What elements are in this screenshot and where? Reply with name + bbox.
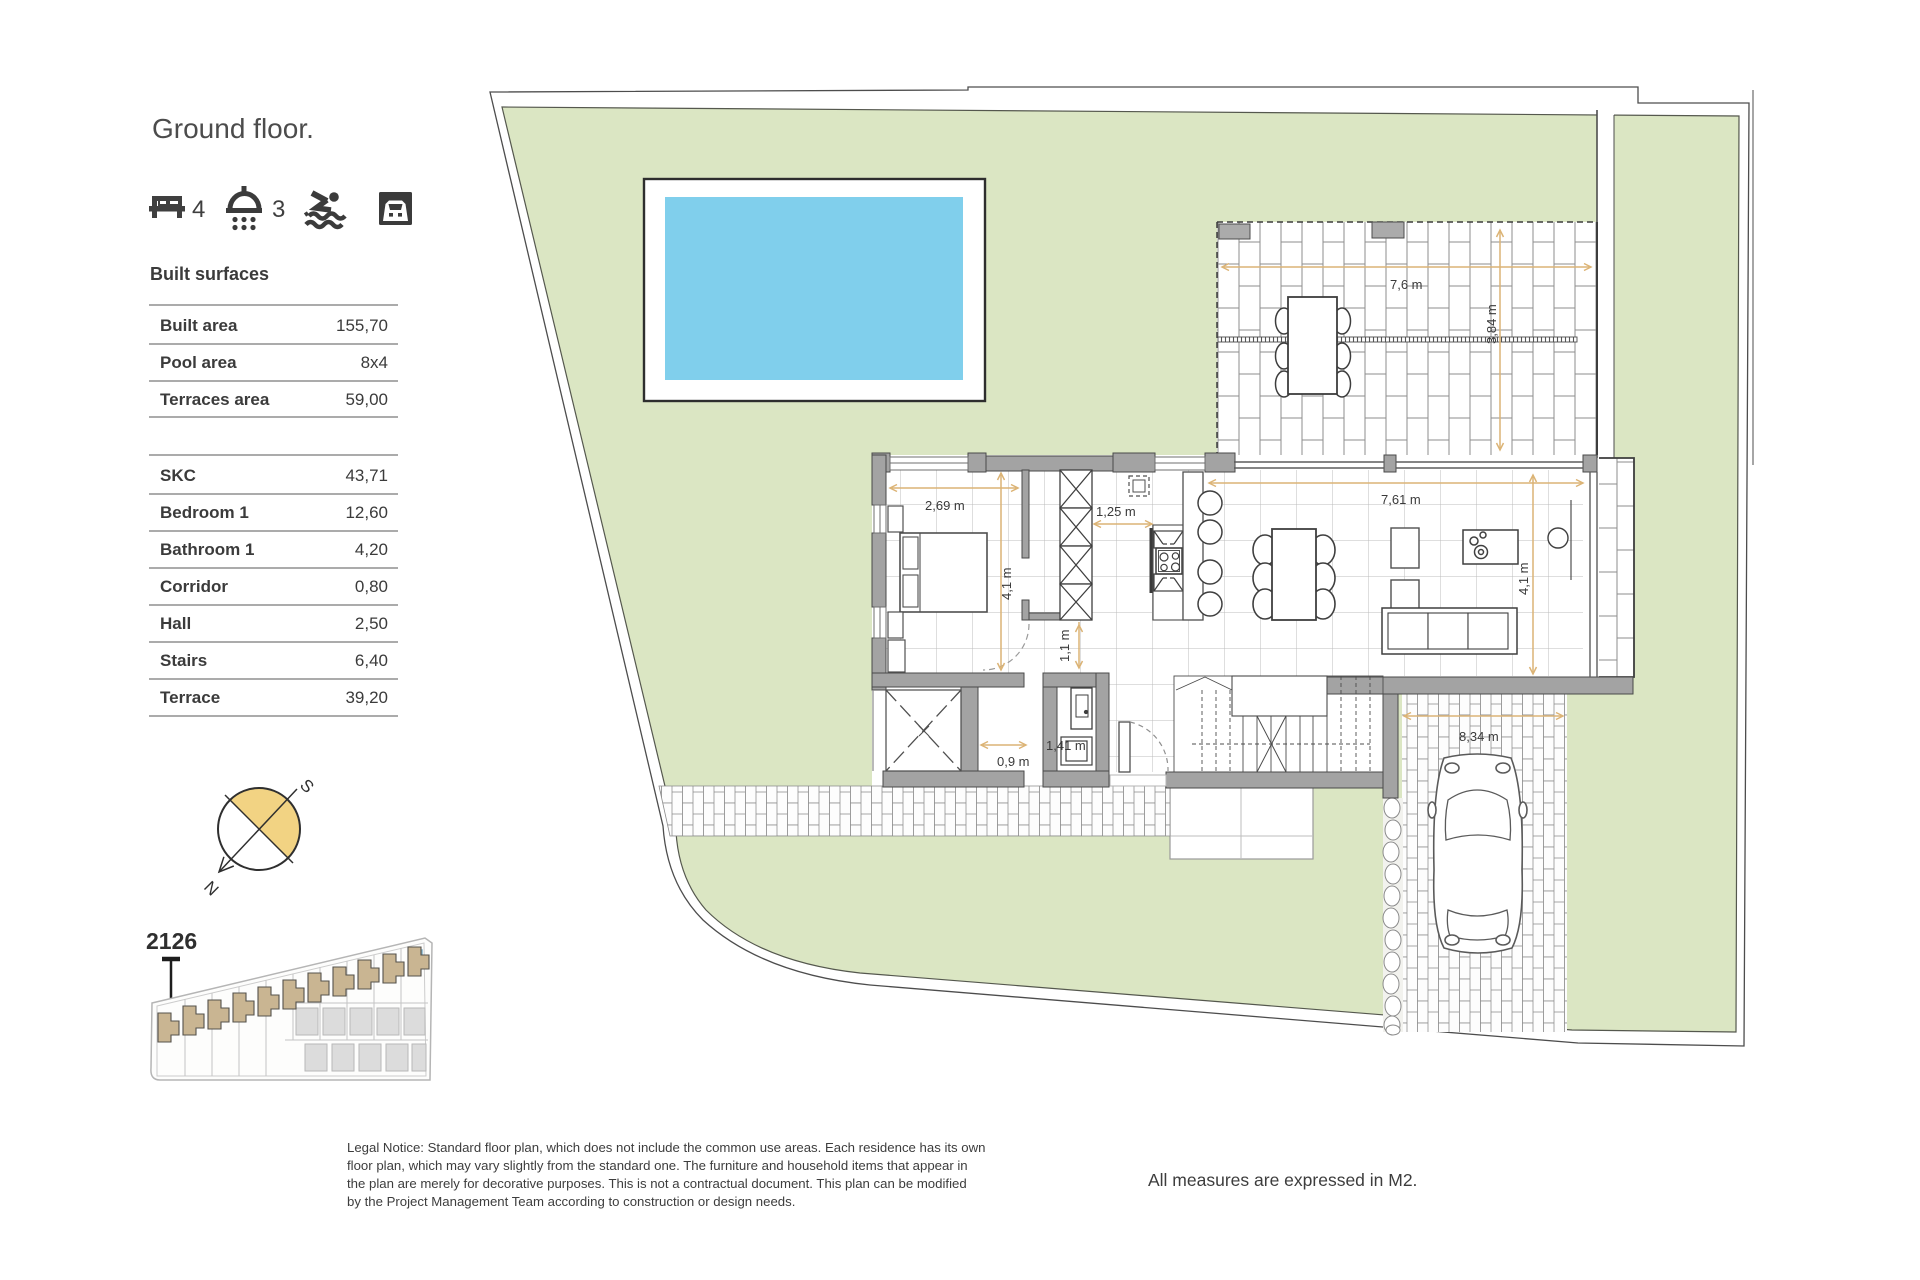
svg-text:by the Project Management Team: by the Project Management Team according… <box>347 1194 795 1209</box>
svg-text:Ground floor.: Ground floor. <box>152 113 314 144</box>
svg-text:Terraces area: Terraces area <box>160 390 270 409</box>
svg-text:4,20: 4,20 <box>355 540 388 559</box>
svg-text:0,9 m: 0,9 m <box>997 754 1030 769</box>
svg-text:Bedroom 1: Bedroom 1 <box>160 503 249 522</box>
svg-text:6,40: 6,40 <box>355 651 388 670</box>
svg-text:43,71: 43,71 <box>345 466 388 485</box>
svg-text:Bathroom 1: Bathroom 1 <box>160 540 254 559</box>
svg-text:Built surfaces: Built surfaces <box>150 264 269 284</box>
svg-text:2,50: 2,50 <box>355 614 388 633</box>
svg-text:8,34 m: 8,34 m <box>1459 729 1499 744</box>
svg-text:2126: 2126 <box>146 928 197 954</box>
svg-text:Built area: Built area <box>160 316 238 335</box>
svg-text:7,61 m: 7,61 m <box>1381 492 1421 507</box>
svg-text:2,69 m: 2,69 m <box>925 498 965 513</box>
svg-text:1,1 m: 1,1 m <box>1057 629 1072 662</box>
svg-text:59,00: 59,00 <box>345 390 388 409</box>
svg-text:3,84 m: 3,84 m <box>1484 304 1499 344</box>
svg-text:Hall: Hall <box>160 614 191 633</box>
svg-text:Stairs: Stairs <box>160 651 207 670</box>
svg-text:Corridor: Corridor <box>160 577 228 596</box>
svg-text:3: 3 <box>272 196 285 223</box>
svg-text:1,25 m: 1,25 m <box>1096 504 1136 519</box>
svg-text:SKC: SKC <box>160 466 196 485</box>
svg-text:All measures are expressed in: All measures are expressed in M2. <box>1148 1170 1417 1190</box>
svg-text:4,1 m: 4,1 m <box>1516 562 1531 595</box>
svg-text:4,1 m: 4,1 m <box>999 567 1014 600</box>
svg-text:4: 4 <box>192 196 205 223</box>
svg-text:the plan are merely for decora: the plan are merely for decorative purpo… <box>347 1176 967 1191</box>
svg-text:Terrace: Terrace <box>160 688 220 707</box>
svg-text:12,60: 12,60 <box>345 503 388 522</box>
svg-text:1,41 m: 1,41 m <box>1046 738 1086 753</box>
svg-text:Pool area: Pool area <box>160 353 237 372</box>
svg-text:7,6 m: 7,6 m <box>1390 277 1423 292</box>
svg-text:155,70: 155,70 <box>336 316 388 335</box>
svg-text:floor plan, which may vary sli: floor plan, which may vary slightly from… <box>347 1158 968 1173</box>
svg-text:Legal Notice: Standard floor p: Legal Notice: Standard floor plan, which… <box>347 1140 986 1155</box>
svg-text:8x4: 8x4 <box>361 353 388 372</box>
svg-text:0,80: 0,80 <box>355 577 388 596</box>
svg-text:39,20: 39,20 <box>345 688 388 707</box>
